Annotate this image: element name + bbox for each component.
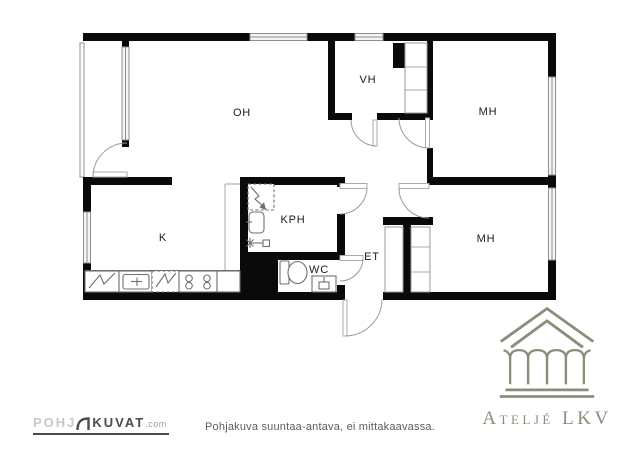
washer-valve-symbol: [247, 238, 270, 248]
atelje-lkv-logo: Ateljé LKV: [465, 300, 629, 430]
door-entrance: [343, 299, 382, 336]
temple-icon: [495, 300, 599, 406]
closet-mh-bottom: [411, 227, 430, 292]
door-vh: [351, 120, 377, 146]
door-mh-bottom: [399, 184, 429, 219]
closet-vh: [405, 43, 427, 113]
kitchen-boundary-line: [225, 184, 240, 270]
room-label-wc: WC: [309, 264, 329, 276]
washbasin-wc-symbol: [312, 276, 336, 292]
door-balcony: [93, 143, 127, 177]
toilet-symbol: [280, 261, 307, 284]
closet-et: [385, 227, 403, 292]
fridge-symbol: [85, 271, 119, 292]
door-kph: [340, 184, 367, 215]
room-label-kph: KPH: [280, 214, 305, 226]
room-label-et: ET: [364, 251, 380, 263]
room-label-vh: VH: [360, 74, 377, 86]
room-label-mh-bottom: MH: [477, 233, 496, 245]
shower-symbol: [248, 184, 274, 210]
windows: [84, 34, 556, 264]
window-vh-top: [355, 34, 383, 41]
door-wc: [340, 256, 363, 282]
sink-symbol: [119, 271, 152, 292]
walls: [83, 33, 556, 300]
dishwasher-symbol: [152, 271, 179, 292]
room-label-oh: OH: [233, 107, 251, 119]
window-mh-top-right: [549, 77, 556, 175]
door-mh-top: [399, 118, 430, 148]
window-kitchen-left: [84, 212, 91, 263]
counter-section: [217, 271, 240, 292]
stove-symbol: [179, 271, 217, 292]
kitchen-fixtures: [85, 271, 240, 293]
window-oh-top: [250, 34, 307, 41]
window-balcony: [122, 47, 129, 140]
atelje-lkv-wordmark: Ateljé LKV: [465, 408, 629, 430]
balcony-glass-rail: [80, 43, 84, 177]
room-label-k: K: [159, 232, 167, 244]
room-label-mh-top: MH: [479, 106, 498, 118]
window-mh-bottom-right: [549, 188, 556, 260]
washbasin-kph-symbol: [246, 212, 264, 233]
